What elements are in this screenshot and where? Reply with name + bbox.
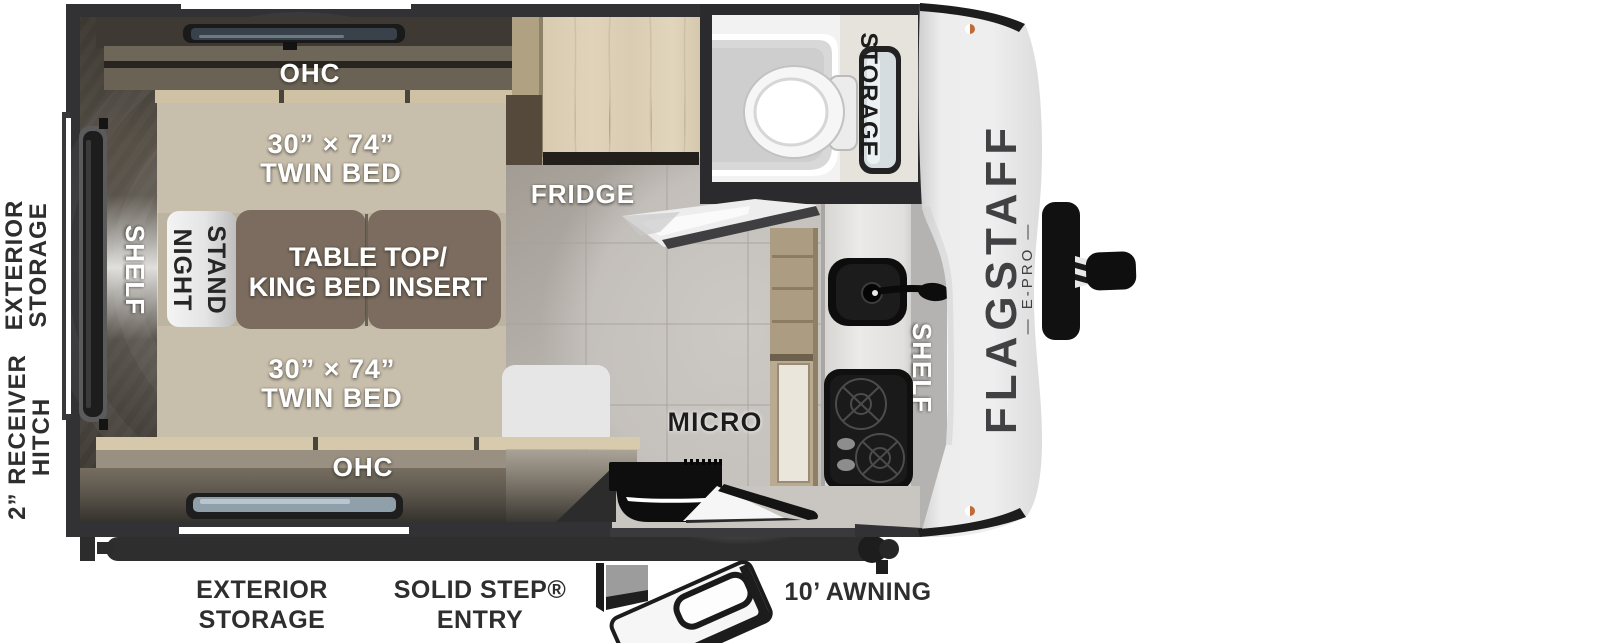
svg-text:FRIDGE: FRIDGE	[531, 179, 635, 209]
svg-text:EXTERIOR: EXTERIOR	[196, 576, 328, 604]
svg-text:STAND: STAND	[202, 225, 230, 314]
svg-text:SHELF: SHELF	[120, 225, 150, 315]
svg-text:OHC: OHC	[333, 452, 394, 482]
svg-text:TABLE TOP/: TABLE TOP/	[289, 242, 448, 272]
svg-text:30” × 74”: 30” × 74”	[269, 354, 396, 384]
svg-text:SHELF: SHELF	[907, 323, 937, 413]
svg-text:TWIN BED: TWIN BED	[261, 383, 402, 413]
svg-text:ENTRY: ENTRY	[437, 606, 523, 634]
svg-text:TWIN BED: TWIN BED	[260, 158, 401, 188]
svg-text:2” RECEIVER: 2” RECEIVER	[4, 354, 31, 520]
svg-text:MICRO: MICRO	[668, 407, 763, 437]
svg-text:HITCH: HITCH	[28, 398, 55, 476]
svg-text:KING BED INSERT: KING BED INSERT	[249, 272, 488, 302]
svg-text:SOLID STEP®: SOLID STEP®	[394, 576, 567, 604]
svg-text:STORAGE: STORAGE	[25, 202, 52, 327]
svg-text:STORAGE: STORAGE	[855, 32, 882, 157]
svg-text:EXTERIOR: EXTERIOR	[1, 200, 28, 331]
svg-text:— E-PRO —: — E-PRO —	[1019, 222, 1036, 335]
svg-text:STORAGE: STORAGE	[199, 606, 326, 634]
svg-text:10’ AWNING: 10’ AWNING	[784, 578, 931, 606]
svg-text:NIGHT: NIGHT	[168, 229, 196, 312]
svg-text:30” × 74”: 30” × 74”	[268, 129, 395, 159]
svg-text:OHC: OHC	[280, 58, 341, 88]
